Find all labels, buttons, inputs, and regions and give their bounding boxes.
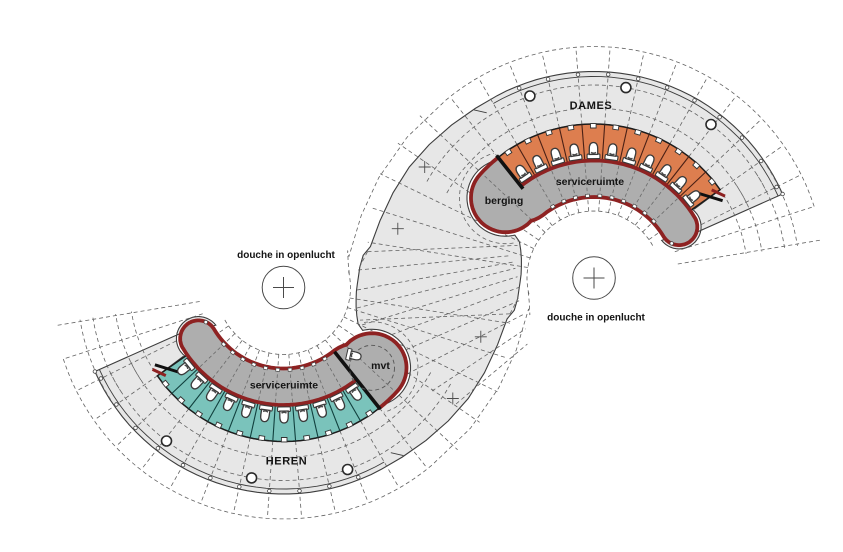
svg-text:douche in openlucht: douche in openlucht: [547, 313, 645, 324]
svg-text:serviceruimte: serviceruimte: [250, 380, 318, 392]
svg-text:serviceruimte: serviceruimte: [556, 176, 624, 188]
svg-text:douche in openlucht: douche in openlucht: [237, 250, 335, 261]
svg-text:DAMES: DAMES: [570, 100, 613, 112]
svg-text:berging: berging: [485, 195, 524, 207]
svg-text:mvt: mvt: [371, 360, 390, 372]
svg-text:HEREN: HEREN: [266, 456, 308, 468]
